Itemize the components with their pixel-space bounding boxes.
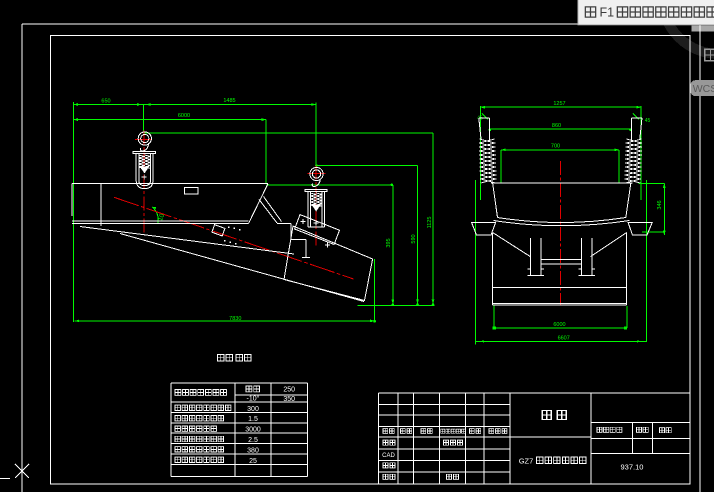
- svg-text:6000: 6000: [178, 113, 190, 119]
- svg-text:WCS: WCS: [693, 83, 714, 95]
- svg-text:860: 860: [552, 123, 561, 129]
- svg-text:45: 45: [477, 116, 483, 122]
- svg-text:1.5: 1.5: [248, 416, 258, 423]
- svg-text:GZ7: GZ7: [519, 456, 534, 465]
- svg-text:6000: 6000: [553, 322, 565, 328]
- svg-text:346: 346: [657, 200, 663, 209]
- svg-text:1125: 1125: [427, 217, 433, 229]
- svg-text:590: 590: [411, 234, 417, 243]
- svg-text:1257: 1257: [553, 101, 565, 107]
- svg-text:45: 45: [645, 118, 651, 124]
- svg-text:6607: 6607: [558, 336, 570, 342]
- svg-text:CAD: CAD: [382, 453, 395, 459]
- svg-text:700: 700: [551, 144, 560, 150]
- svg-text:7830: 7830: [229, 316, 241, 322]
- svg-text:937.10: 937.10: [621, 463, 644, 472]
- svg-text:395: 395: [386, 238, 392, 247]
- svg-text:3000: 3000: [245, 427, 261, 434]
- svg-text:250: 250: [283, 386, 295, 393]
- svg-text:300: 300: [247, 406, 259, 413]
- svg-text:380: 380: [247, 447, 259, 454]
- svg-text:25: 25: [249, 458, 257, 465]
- svg-text:1485: 1485: [223, 98, 235, 104]
- svg-text:2.5: 2.5: [248, 437, 258, 444]
- svg-text:350: 350: [283, 396, 295, 403]
- svg-text:-10°: -10°: [247, 394, 260, 402]
- svg-text:650: 650: [101, 99, 110, 105]
- svg-text:F1: F1: [600, 6, 615, 20]
